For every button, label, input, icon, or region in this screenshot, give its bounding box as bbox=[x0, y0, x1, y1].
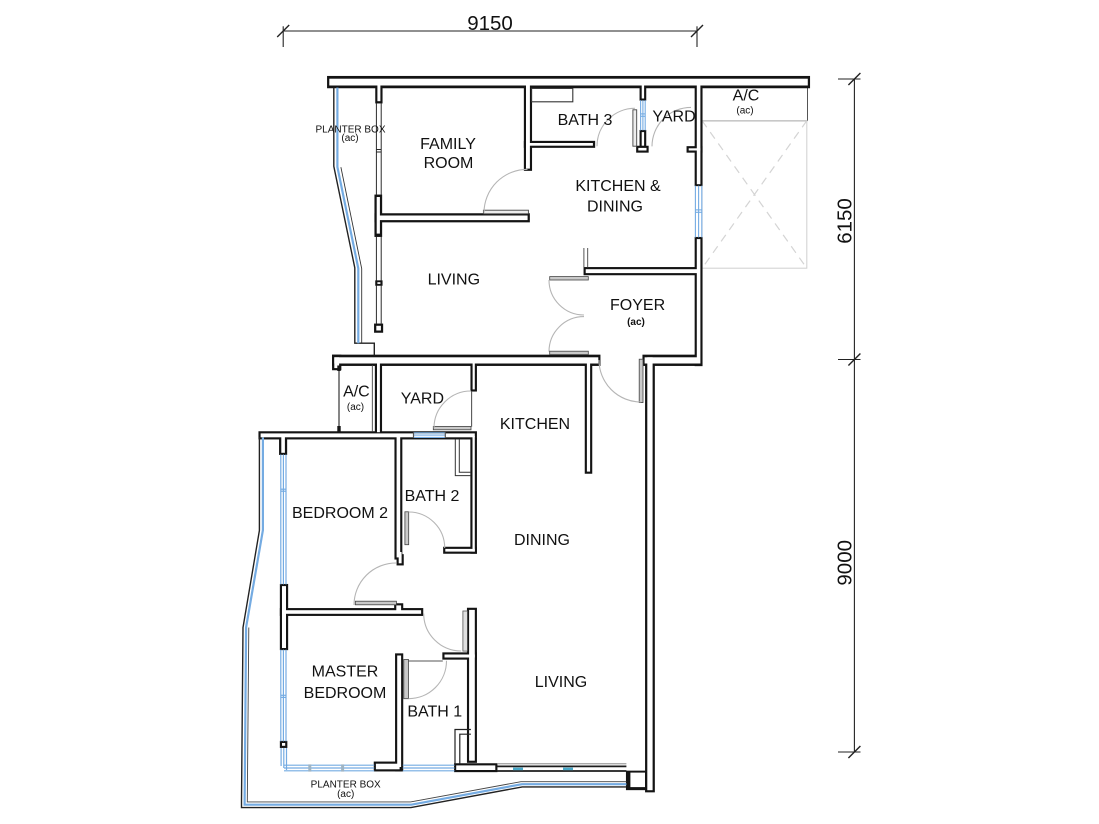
svg-text:BEDROOM 2: BEDROOM 2 bbox=[292, 505, 388, 522]
svg-text:ROOM: ROOM bbox=[424, 155, 474, 172]
svg-text:FAMILY: FAMILY bbox=[420, 136, 476, 153]
svg-text:BATH 1: BATH 1 bbox=[407, 704, 462, 721]
svg-text:(ac): (ac) bbox=[337, 789, 354, 800]
svg-text:A/C: A/C bbox=[343, 383, 370, 400]
svg-text:MASTER: MASTER bbox=[312, 664, 379, 681]
svg-text:YARD: YARD bbox=[401, 391, 444, 408]
svg-text:(ac): (ac) bbox=[627, 317, 645, 328]
svg-text:DINING: DINING bbox=[587, 198, 643, 215]
svg-text:A/C: A/C bbox=[733, 88, 760, 105]
svg-text:LIVING: LIVING bbox=[428, 271, 480, 288]
svg-text:DINING: DINING bbox=[514, 532, 570, 549]
svg-text:KITCHEN: KITCHEN bbox=[500, 416, 570, 433]
svg-text:(ac): (ac) bbox=[736, 106, 753, 117]
svg-text:(ac): (ac) bbox=[341, 133, 358, 144]
svg-text:FOYER: FOYER bbox=[610, 297, 665, 314]
svg-text:6150: 6150 bbox=[834, 198, 857, 244]
svg-text:BEDROOM: BEDROOM bbox=[304, 685, 387, 702]
svg-text:BATH 3: BATH 3 bbox=[558, 112, 613, 129]
svg-text:9150: 9150 bbox=[467, 12, 513, 35]
svg-text:LIVING: LIVING bbox=[535, 674, 587, 691]
svg-text:YARD: YARD bbox=[652, 109, 695, 126]
svg-text:9000: 9000 bbox=[834, 540, 857, 586]
svg-text:BATH 2: BATH 2 bbox=[405, 488, 460, 505]
svg-text:KITCHEN &: KITCHEN & bbox=[575, 178, 661, 195]
svg-text:(ac): (ac) bbox=[347, 402, 364, 413]
